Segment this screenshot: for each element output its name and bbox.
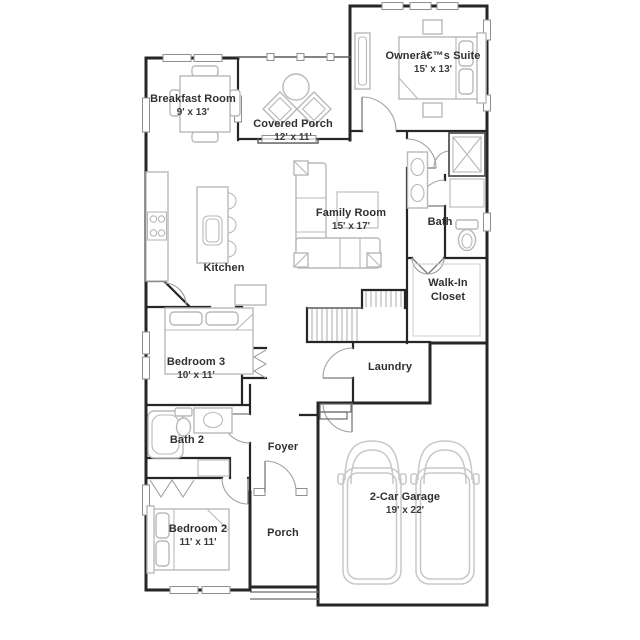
car: [338, 441, 406, 584]
family-room-furniture: [294, 161, 381, 268]
car: [411, 441, 479, 584]
walk-in-closet-shelving: [413, 264, 480, 336]
floor-plan-drawing: [0, 0, 640, 640]
kitchen-fixtures: [146, 172, 266, 305]
bath-2-fixtures: [148, 408, 232, 476]
garage-cars: [338, 441, 479, 584]
floor-plan: Ownerâ€™s Suite 15' x 13' Breakfast Room…: [0, 0, 640, 640]
steps: [250, 404, 351, 599]
owners-suite-furniture: [355, 20, 486, 117]
stairs: [312, 291, 401, 341]
breakfast-table: [170, 66, 240, 142]
porch-furniture: [263, 74, 331, 126]
bedroom-2-furniture: [147, 506, 229, 573]
bedroom-3-furniture: [165, 308, 253, 374]
bath-fixtures: [408, 133, 486, 251]
